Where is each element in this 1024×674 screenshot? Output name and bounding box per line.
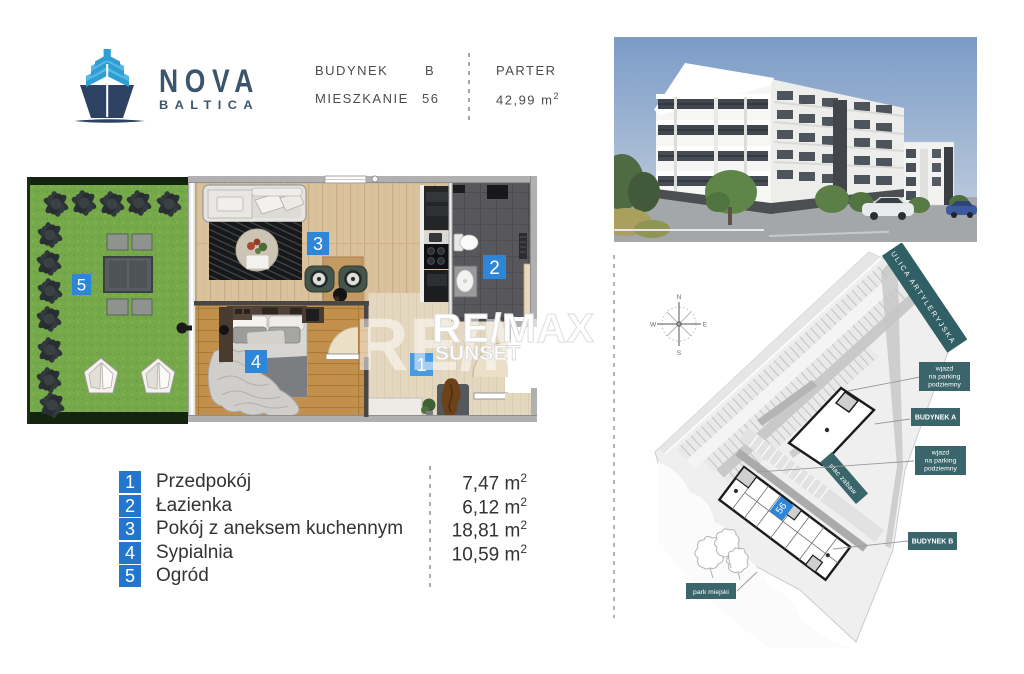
svg-text:na parking: na parking <box>929 374 961 381</box>
svg-text:park miejski: park miejski <box>693 589 729 596</box>
svg-text:4: 4 <box>251 352 261 372</box>
svg-text:5: 5 <box>77 276 86 295</box>
svg-text:NOVA: NOVA <box>159 63 260 99</box>
svg-text:wjazd: wjazd <box>935 366 954 373</box>
svg-text:BUDYNEK A: BUDYNEK A <box>915 415 956 422</box>
svg-text:S: S <box>677 350 682 357</box>
svg-text:podziemny: podziemny <box>928 382 961 389</box>
svg-text:BUDYNEK B: BUDYNEK B <box>912 539 954 546</box>
svg-text:W: W <box>650 322 657 329</box>
svg-text:wjazd: wjazd <box>931 450 950 457</box>
svg-text:E: E <box>703 322 708 329</box>
svg-text:N: N <box>677 294 682 301</box>
svg-text:3: 3 <box>313 234 323 254</box>
svg-text:BALTICA: BALTICA <box>159 98 259 112</box>
svg-text:podziemny: podziemny <box>924 466 957 473</box>
svg-text:na parking: na parking <box>925 458 957 465</box>
svg-text:2: 2 <box>489 258 500 279</box>
